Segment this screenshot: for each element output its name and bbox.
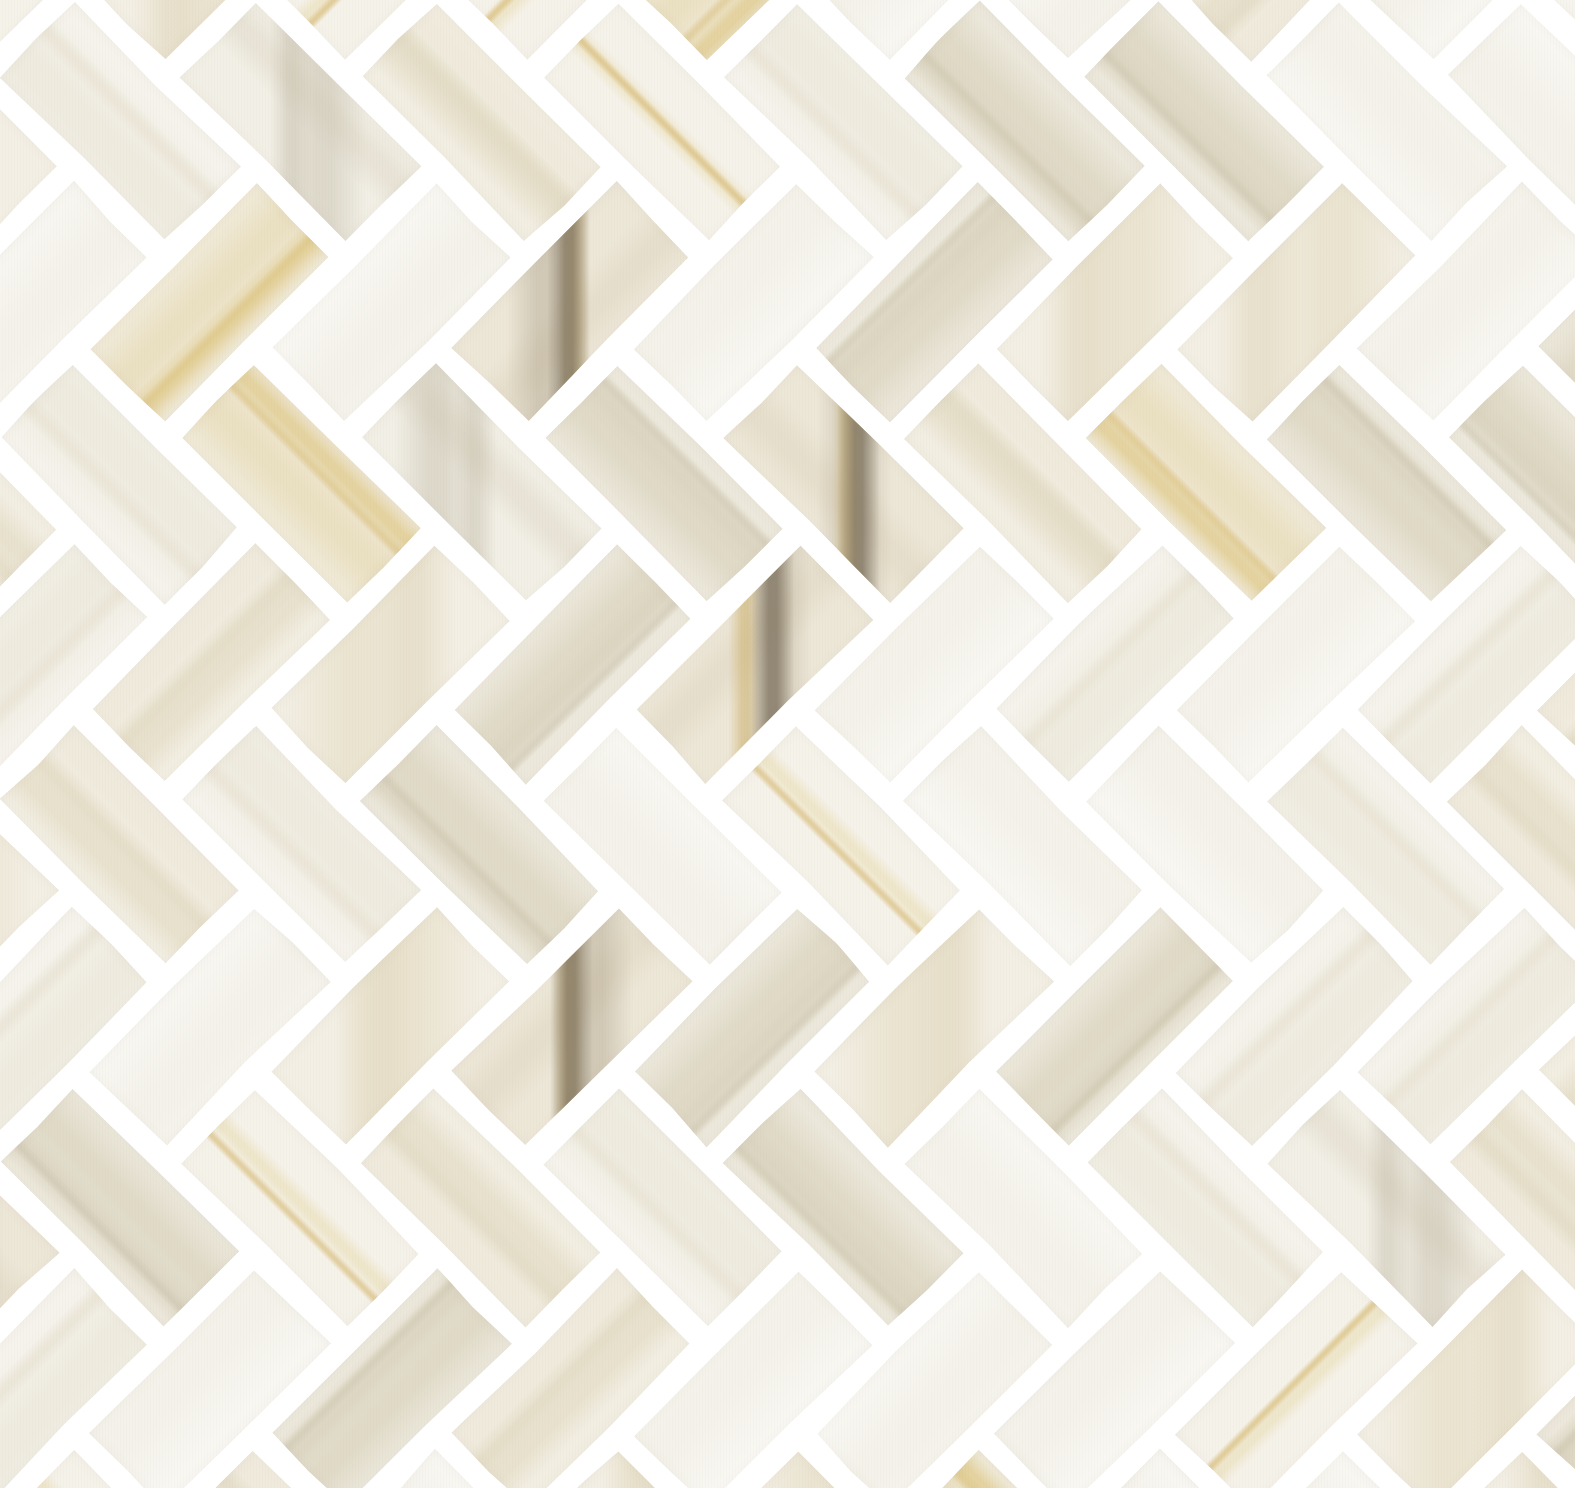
mosaic-chip [0, 361, 241, 606]
mosaic-chip [449, 180, 694, 425]
mosaic-chip [268, 542, 513, 787]
mosaic-chip [901, 361, 1146, 606]
mosaic-chip [1263, 723, 1508, 968]
mosaic-chip [811, 542, 1056, 787]
mosaic-chip [720, 1085, 965, 1330]
mosaic-chip [1082, 361, 1327, 606]
mosaic-chip [630, 904, 875, 1149]
mosaic-chip [177, 723, 422, 968]
mosaic-chip [0, 0, 241, 244]
mosaic-chip [87, 904, 332, 1149]
mosaic-chip [539, 723, 784, 968]
mosaic-chip [539, 361, 784, 606]
mosaic-chip [0, 723, 241, 968]
mosaic-chip [720, 723, 965, 968]
mosaic-chip [1082, 723, 1327, 968]
mosaic-chip [992, 180, 1237, 425]
mosaic-chip [268, 904, 513, 1149]
mosaic-chip [449, 542, 694, 787]
mosaic-chip [449, 904, 694, 1149]
mosaic-chip [901, 723, 1146, 968]
mosaic-chip [1082, 1085, 1327, 1330]
mosaic-chip [1082, 0, 1327, 244]
mosaic-chip [1173, 180, 1418, 425]
mosaic-chip [992, 542, 1237, 787]
mosaic-chip [539, 0, 784, 244]
mosaic-chip [358, 0, 603, 244]
mosaic-chip [720, 0, 965, 244]
mosaic-chip [177, 0, 422, 244]
mosaic-chip [358, 723, 603, 968]
herringbone-sheet [0, 0, 1575, 1488]
mosaic-chip [87, 542, 332, 787]
mosaic-chip [1173, 542, 1418, 787]
mosaic-chip [811, 904, 1056, 1149]
mosaic-chip [811, 180, 1056, 425]
mosaic-chip [1354, 1266, 1575, 1488]
mosaic-chip [1173, 904, 1418, 1149]
mosaic-chip [177, 1085, 422, 1330]
mosaic-chip [720, 361, 965, 606]
mosaic-chip [630, 180, 875, 425]
mosaic-chip [1263, 361, 1508, 606]
mosaic-chip [539, 1085, 784, 1330]
mosaic-chip [630, 542, 875, 787]
mosaic-chip [992, 904, 1237, 1149]
mosaic-chip [177, 361, 422, 606]
mosaic-chip [901, 1085, 1146, 1330]
mosaic-chip [87, 180, 332, 425]
mosaic-chip [0, 1085, 241, 1330]
mosaic-chip [358, 1085, 603, 1330]
mosaic-chip [901, 0, 1146, 244]
mosaic-sheet-photo [0, 0, 1575, 1488]
mosaic-chip [1263, 1085, 1508, 1330]
mosaic-chip [358, 361, 603, 606]
mosaic-chip [1263, 0, 1508, 244]
mosaic-chip [268, 180, 513, 425]
